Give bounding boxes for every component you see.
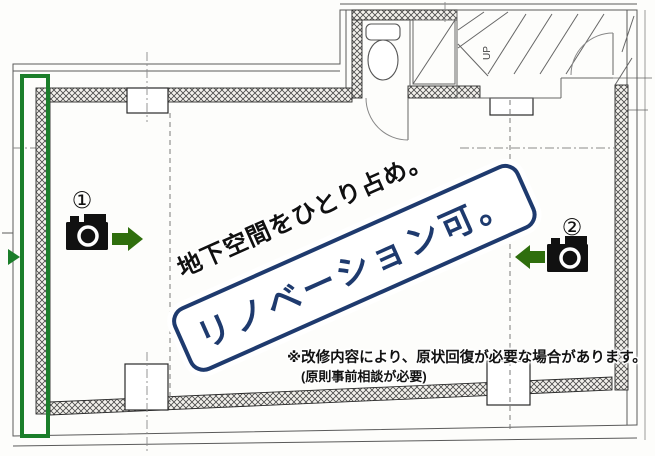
closet xyxy=(413,20,455,84)
stair-door-arc xyxy=(571,33,613,75)
stairs-up-label: UP xyxy=(482,46,493,60)
toilet-door-arc xyxy=(366,98,408,140)
stairs: UP xyxy=(457,12,634,98)
camera-icon xyxy=(547,236,588,272)
toilet-tank xyxy=(366,24,400,40)
stair-tread xyxy=(488,14,526,74)
disclaimer-line2: (原則事前相談が必要) xyxy=(301,366,427,385)
floorplan-flyer: UP ① ② xyxy=(0,0,655,456)
camera-icon xyxy=(66,214,108,250)
column-top xyxy=(127,88,168,113)
camera-1-marker: ① xyxy=(66,187,143,251)
stair-tread xyxy=(514,14,552,74)
floorplan-drawing: UP ① ② xyxy=(0,0,655,456)
green-tick-arrow-icon xyxy=(8,249,20,265)
arrow-right-icon xyxy=(112,227,143,251)
camera-1-label: ① xyxy=(72,187,93,213)
toilet-room xyxy=(366,10,457,140)
column-bottom-right xyxy=(487,361,530,405)
toilet-icon xyxy=(368,40,398,80)
landing-notch xyxy=(490,98,533,115)
disclaimer-line1: ※改修内容により、原状回復が必要な場合があります。 xyxy=(287,346,647,367)
arrow-left-icon xyxy=(515,245,545,269)
column-bottom-left xyxy=(125,364,168,410)
